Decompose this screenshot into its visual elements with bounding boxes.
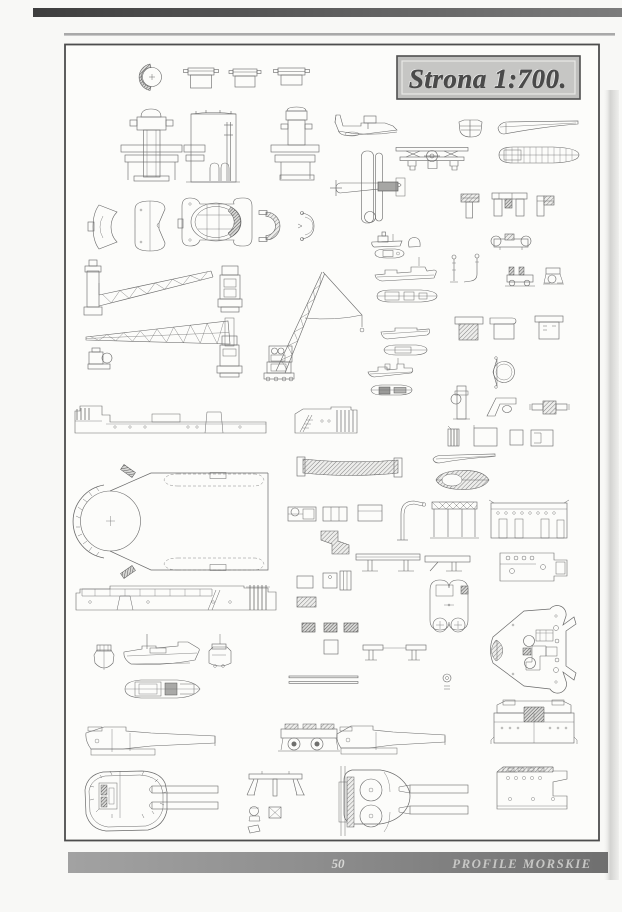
- svg-text:PROFILE MORSKIE: PROFILE MORSKIE: [452, 857, 591, 871]
- svg-text:Strona 1:700.: Strona 1:700.: [409, 63, 567, 93]
- svg-text:50: 50: [332, 856, 346, 871]
